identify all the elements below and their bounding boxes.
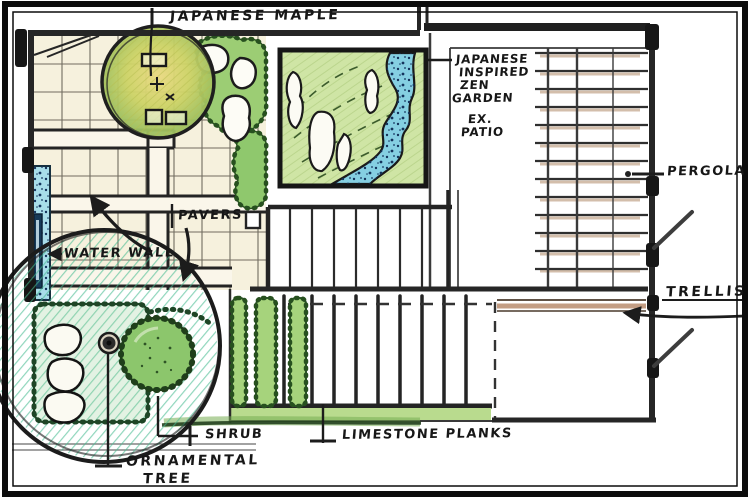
trellis-band [497, 300, 646, 311]
garden-plan-sketch: JAPANESE MAPLE JAPANESE INSPIRED ZEN GAR… [0, 0, 750, 498]
label-water-wall: WATER WALL [63, 245, 175, 261]
stepping-stones [44, 325, 84, 423]
round-shrub [121, 318, 193, 390]
label-ornamental-line1: ORNAMENTAL [125, 452, 260, 469]
label-ex-patio-line2: PATIO [460, 125, 504, 139]
label-trellis: TRELLIS [665, 284, 747, 301]
label-shrub: SHRUB [204, 427, 263, 443]
trellis-arrow [626, 313, 744, 317]
label-ornamental-line2: TREE [142, 471, 193, 488]
japanese-maple-tree [102, 26, 214, 138]
label-japanese-maple: JAPANESE MAPLE [169, 7, 341, 25]
label-limestone-planks: LIMESTONE PLANKS [341, 426, 513, 443]
tree-trunk [99, 333, 119, 353]
label-zen-line4: GARDEN [451, 91, 514, 106]
label-pavers: PAVERS [177, 208, 243, 224]
zen-garden-panel [280, 50, 426, 186]
deck-planks [246, 190, 458, 289]
label-pergola: PERGOLA [666, 164, 746, 180]
